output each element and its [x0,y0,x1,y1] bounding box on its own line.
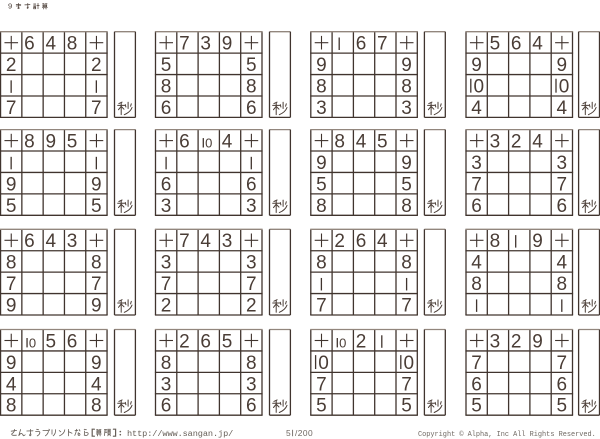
svg-text:8: 8 [316,76,327,97]
svg-text:6: 6 [557,374,568,395]
svg-text:3: 3 [246,196,257,217]
svg-text:4: 4 [532,34,543,55]
svg-text:2: 2 [179,331,190,352]
svg-text:3: 3 [67,231,78,252]
svg-text:7: 7 [377,34,388,55]
svg-text:5: 5 [246,55,257,76]
svg-text:4: 4 [557,98,568,119]
svg-text:7: 7 [246,274,257,295]
svg-text:8: 8 [316,253,327,274]
svg-text:8: 8 [316,196,327,217]
svg-text:3: 3 [161,253,172,274]
svg-text:0: 0 [559,76,570,97]
svg-text:8: 8 [490,231,501,252]
svg-text:4: 4 [532,132,543,153]
svg-text:5: 5 [316,174,327,195]
svg-text:0: 0 [318,353,329,374]
svg-text:4: 4 [6,374,17,395]
svg-text:3: 3 [200,34,211,55]
svg-text:9: 9 [91,295,102,316]
svg-text:0: 0 [29,335,36,350]
svg-text:8: 8 [334,132,345,153]
svg-text:9: 9 [222,34,233,55]
svg-text:6: 6 [161,98,172,119]
svg-text:5: 5 [401,174,412,195]
svg-text:2: 2 [511,331,522,352]
svg-text:6: 6 [179,132,190,153]
svg-text:7: 7 [6,98,17,119]
svg-text:3: 3 [161,196,172,217]
svg-text:9: 9 [6,295,17,316]
svg-text:7: 7 [401,374,412,395]
svg-text:5: 5 [377,132,388,153]
svg-text:3: 3 [471,153,482,174]
svg-text:9: 9 [471,55,482,76]
svg-text:6: 6 [471,196,482,217]
svg-text:4: 4 [200,231,211,252]
svg-text:6: 6 [246,396,257,417]
svg-text:/200: /200 [295,428,313,438]
svg-text:7: 7 [179,231,190,252]
svg-text:6: 6 [161,174,172,195]
svg-text:8: 8 [24,132,35,153]
svg-text:0: 0 [205,136,212,151]
svg-text:9: 9 [6,174,17,195]
svg-text:7: 7 [91,98,102,119]
svg-text:2: 2 [161,295,172,316]
svg-text:2: 2 [246,295,257,316]
svg-text:8: 8 [91,253,102,274]
svg-text:3: 3 [316,98,327,119]
svg-text:7: 7 [91,274,102,295]
svg-text:3: 3 [222,231,233,252]
svg-text:9: 9 [401,153,412,174]
svg-text:4: 4 [557,253,568,274]
svg-text:4: 4 [91,374,102,395]
svg-text:9: 9 [316,55,327,76]
svg-text:4: 4 [222,132,233,153]
svg-text:8: 8 [246,76,257,97]
svg-text:2: 2 [6,55,17,76]
svg-text:7: 7 [161,274,172,295]
svg-text:Copyright © Alpha, Inc All Rig: Copyright © Alpha, Inc All Rights Reserv… [418,430,596,439]
svg-text:9: 9 [532,231,543,252]
svg-text:0: 0 [474,76,485,97]
svg-text:7: 7 [471,174,482,195]
svg-text:7: 7 [179,34,190,55]
svg-text:9: 9 [8,2,12,11]
svg-text:6: 6 [24,34,35,55]
svg-text:3: 3 [246,253,257,274]
svg-text:5: 5 [286,428,291,438]
svg-text:9: 9 [532,331,543,352]
svg-text:0: 0 [339,335,346,350]
svg-text:3: 3 [161,374,172,395]
svg-text:8: 8 [246,353,257,374]
svg-text:6: 6 [246,174,257,195]
svg-text:6: 6 [246,98,257,119]
svg-text:8: 8 [67,34,78,55]
svg-text:7: 7 [557,353,568,374]
svg-text:6: 6 [356,231,367,252]
svg-text:5: 5 [316,396,327,417]
svg-text:5: 5 [67,132,78,153]
svg-text:3: 3 [557,153,568,174]
svg-text:9: 9 [557,55,568,76]
svg-text:8: 8 [557,274,568,295]
svg-text:8: 8 [161,76,172,97]
svg-text:3: 3 [490,331,501,352]
svg-text:7: 7 [6,274,17,295]
svg-text:8: 8 [401,253,412,274]
svg-text:3: 3 [246,374,257,395]
svg-text:2: 2 [511,132,522,153]
svg-text:8: 8 [6,253,17,274]
svg-text:2: 2 [91,55,102,76]
svg-text:7: 7 [401,295,412,316]
svg-text:5: 5 [471,396,482,417]
svg-text:5: 5 [490,34,501,55]
svg-text:9: 9 [6,353,17,374]
svg-text:7: 7 [316,374,327,395]
svg-text:4: 4 [471,98,482,119]
svg-text:3: 3 [490,132,501,153]
svg-text:7: 7 [557,174,568,195]
svg-text:7: 7 [316,295,327,316]
svg-text:3: 3 [401,98,412,119]
svg-text:8: 8 [401,196,412,217]
svg-text:8: 8 [401,76,412,97]
svg-text:8: 8 [6,396,17,417]
svg-text:6: 6 [557,196,568,217]
svg-text:4: 4 [377,231,388,252]
svg-text:5: 5 [222,331,233,352]
svg-text:9: 9 [316,153,327,174]
svg-text:6: 6 [24,231,35,252]
svg-text:8: 8 [161,353,172,374]
svg-text:6: 6 [161,396,172,417]
svg-text:7: 7 [471,353,482,374]
svg-text:6: 6 [471,374,482,395]
svg-text:8: 8 [91,396,102,417]
svg-text:2: 2 [334,231,345,252]
svg-text:4: 4 [45,231,56,252]
svg-text:5: 5 [401,396,412,417]
svg-text:9: 9 [91,353,102,374]
svg-text:5: 5 [6,196,17,217]
svg-text:4: 4 [45,34,56,55]
svg-text:6: 6 [200,331,211,352]
svg-text:0: 0 [404,353,415,374]
svg-text:6: 6 [67,331,78,352]
svg-text:5: 5 [45,331,56,352]
svg-text:5: 5 [161,55,172,76]
svg-text:9: 9 [401,55,412,76]
svg-text:5: 5 [557,396,568,417]
svg-text:5: 5 [91,196,102,217]
svg-text:4: 4 [471,253,482,274]
svg-text:4: 4 [356,132,367,153]
svg-text:8: 8 [471,274,482,295]
svg-text:9: 9 [91,174,102,195]
svg-text:6: 6 [511,34,522,55]
svg-text:9: 9 [45,132,56,153]
svg-text:http://www.sangan.jp/: http://www.sangan.jp/ [127,429,233,439]
svg-text:2: 2 [356,331,367,352]
svg-text:6: 6 [356,34,367,55]
